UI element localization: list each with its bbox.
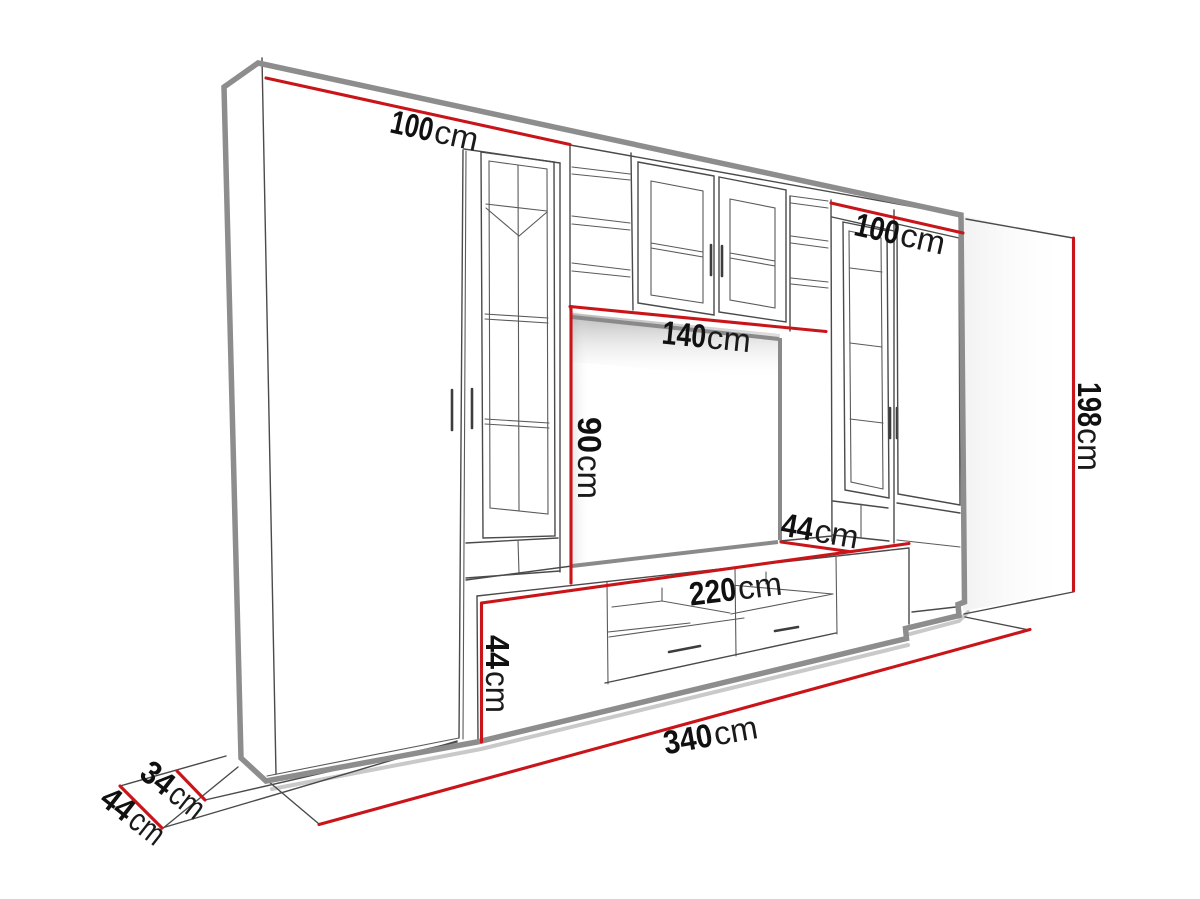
svg-text:cm: cm [705,318,752,359]
svg-text:100: 100 [387,103,437,148]
svg-text:cm: cm [711,708,761,752]
svg-text:cm: cm [571,455,608,499]
svg-text:140: 140 [660,314,707,355]
svg-text:cm: cm [479,671,516,713]
svg-text:cm: cm [431,112,482,158]
svg-text:cm: cm [1071,428,1108,471]
svg-text:198: 198 [1071,382,1108,427]
svg-text:220: 220 [687,570,738,612]
svg-text:cm: cm [812,512,862,556]
svg-text:340: 340 [660,716,715,761]
svg-text:90: 90 [571,417,608,453]
svg-text:cm: cm [736,565,784,607]
svg-text:cm: cm [897,216,949,262]
svg-text:44: 44 [778,506,816,548]
svg-text:44: 44 [479,635,516,670]
svg-text:100: 100 [851,205,903,251]
